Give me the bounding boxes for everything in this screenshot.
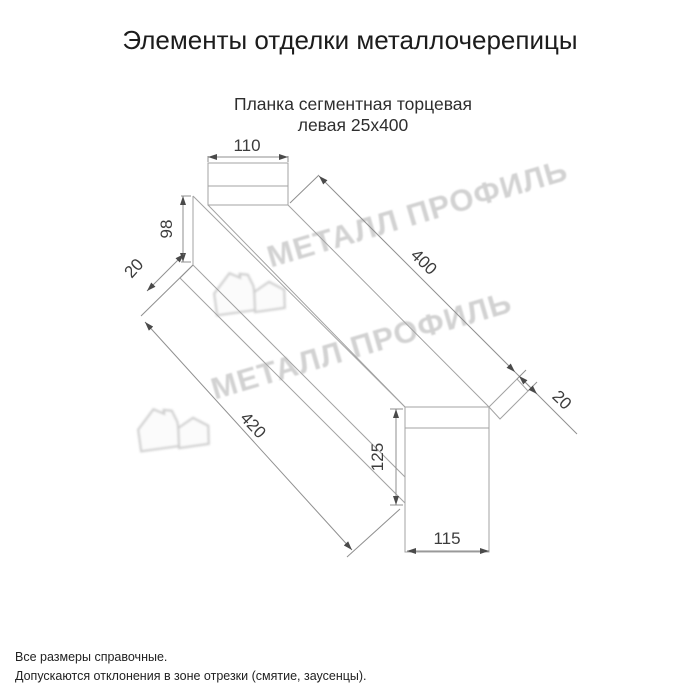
dimension-end-height (181, 196, 191, 262)
dimension-top-width (208, 156, 288, 162)
strip-edge-2 (208, 205, 405, 407)
dim-20-left-label: 20 (121, 255, 148, 282)
near-end-face (208, 163, 288, 205)
footer-notes: Все размеры справочные. Допускаются откл… (15, 648, 367, 686)
dimension-total-length (145, 322, 400, 557)
dim-98-label: 98 (157, 220, 176, 239)
part-outline (180, 163, 528, 552)
dim-125-label: 125 (368, 443, 387, 471)
dim-110-label: 110 (233, 136, 260, 155)
dimension-left-hem (141, 254, 193, 316)
product-subtitle-line1: Планка сегментная торцевая (0, 94, 700, 115)
product-subtitle-line2: левая 25х400 (0, 115, 700, 136)
dimension-length (290, 175, 515, 372)
strip-edge-3 (193, 196, 405, 407)
dim-400-label: 400 (407, 245, 441, 278)
strip-edge-1 (288, 205, 489, 407)
dim-115-label: 115 (433, 529, 460, 548)
footer-note-1: Все размеры справочные. (15, 648, 367, 667)
far-end-hem-flap (489, 379, 528, 419)
footer-note-2: Допускаются отклонения в зоне отрезки (с… (15, 667, 367, 686)
page-title: Элементы отделки металлочерепицы (0, 25, 700, 56)
dim-420-label: 420 (236, 408, 269, 442)
product-subtitle: Планка сегментная торцевая левая 25х400 (0, 94, 700, 136)
drawing-page: МЕТАЛЛ ПРОФИЛЬ МЕТАЛЛ ПРОФИЛЬ (0, 0, 700, 700)
